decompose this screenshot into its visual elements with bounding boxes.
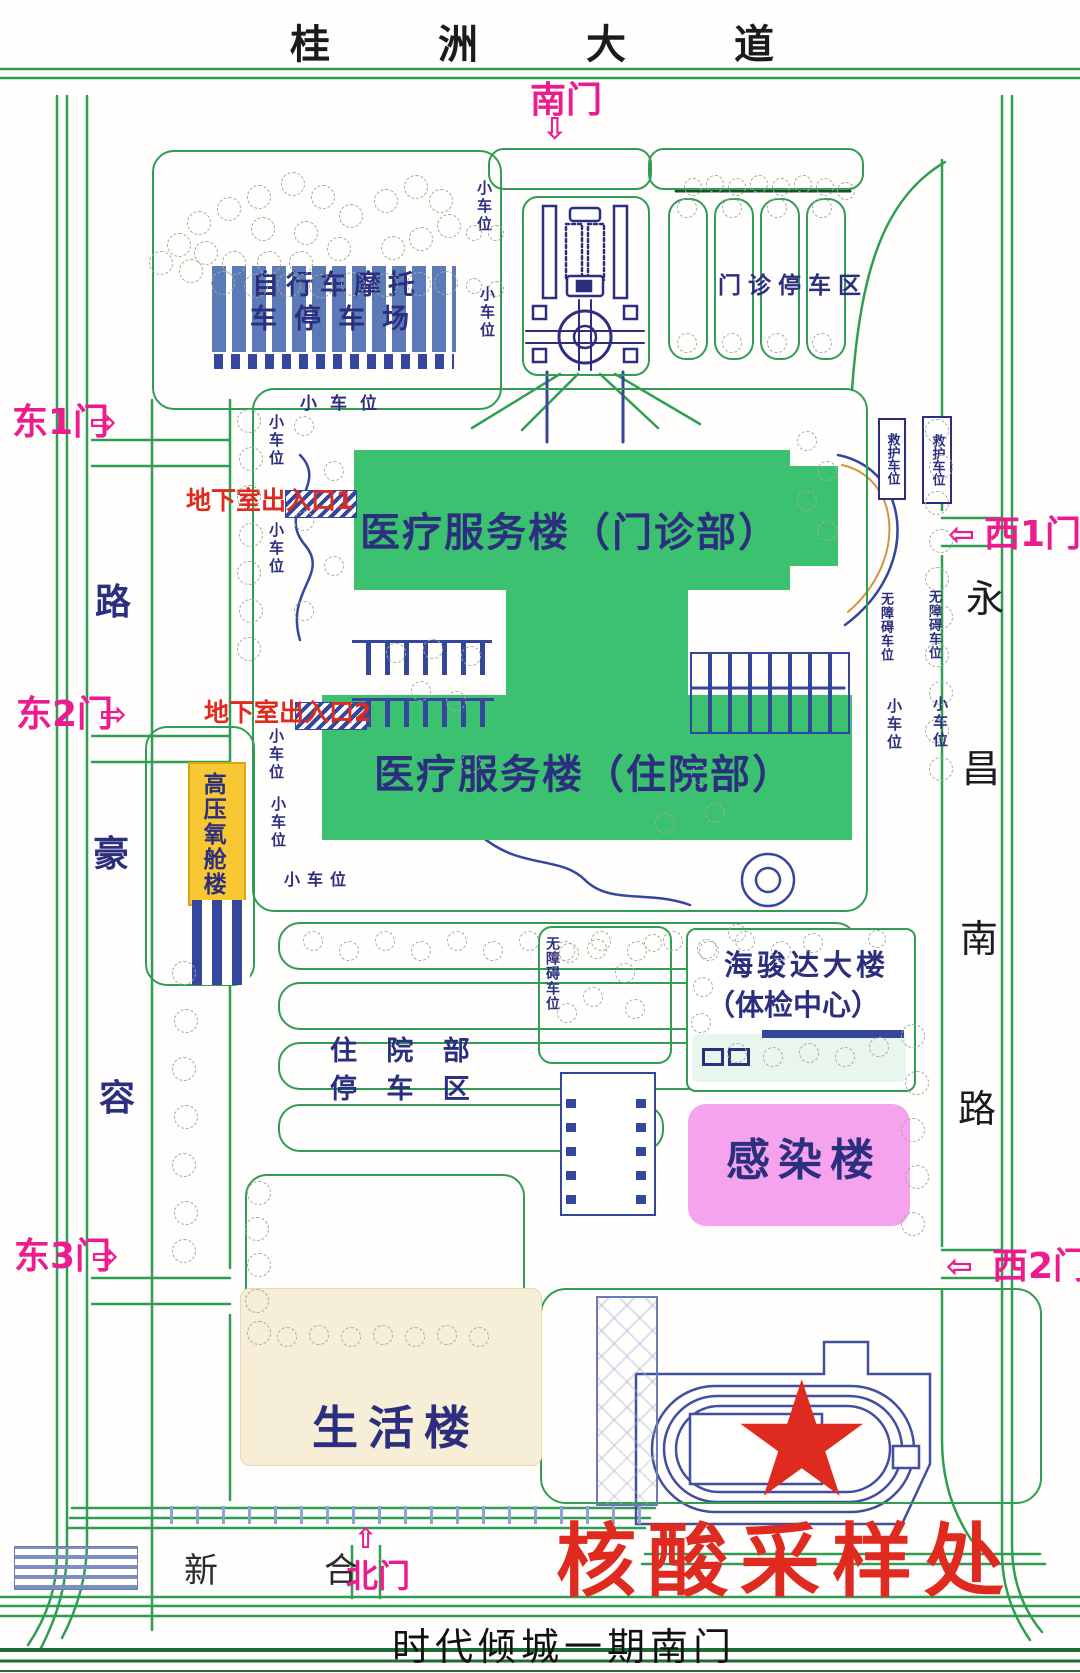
hyperbaric-building-label: 高压氧舱楼: [200, 772, 224, 897]
tree-icon: [149, 251, 173, 275]
small-car-label: 小车位: [884, 698, 905, 752]
tree-icon: [339, 204, 363, 228]
tree-icon: [722, 333, 742, 353]
outpatient-building-label: 医疗服务楼（门诊部）: [360, 512, 780, 554]
tree-icon: [294, 601, 314, 621]
west-road-char: 路: [95, 584, 131, 622]
tree-icon: [447, 931, 467, 951]
haijunda-entry-mark: [702, 1048, 724, 1066]
tree-icon: [684, 178, 702, 196]
tree-icon: [375, 931, 395, 951]
tree-icon: [174, 1201, 198, 1225]
bike-parking-teeth: [214, 354, 454, 369]
south-gate-island: [488, 148, 652, 190]
east-gate2-arrow-icon: ⇨: [100, 698, 127, 732]
tree-icon: [311, 185, 335, 209]
tree-icon: [925, 419, 949, 443]
tree-icon: [407, 272, 431, 296]
tree-icon: [767, 333, 787, 353]
infection-building-label: 感染楼: [726, 1138, 882, 1184]
north-road-char: 新: [184, 1554, 218, 1590]
tree-icon: [237, 561, 261, 585]
tree-icon: [929, 757, 953, 781]
tree-icon: [167, 233, 191, 257]
tree-icon: [374, 273, 398, 297]
inpatient-building-label: 医疗服务楼（住院部）: [374, 754, 794, 796]
ambulance-parking-sign: 救护车位: [878, 418, 906, 500]
tree-icon: [691, 1013, 711, 1033]
life-building-label: 生活楼: [312, 1404, 480, 1452]
tree-icon: [728, 924, 746, 942]
parking-comb: [352, 698, 494, 727]
tree-icon: [172, 1057, 196, 1081]
east-gate2-label: 东2门: [16, 696, 113, 734]
tree-icon: [797, 491, 817, 511]
tree-icon: [247, 1181, 271, 1205]
tree-icon: [901, 1024, 925, 1048]
tree-icon: [324, 556, 344, 576]
south-gate-arrow-icon: ⇩: [542, 114, 567, 146]
tree-icon: [817, 461, 837, 481]
tree-icon: [868, 930, 886, 948]
tree-icon: [239, 447, 263, 471]
tree-icon: [869, 1037, 889, 1057]
haijunda-label-line2: （体检中心）: [706, 990, 880, 1020]
small-car-label: 小车位: [266, 414, 287, 468]
tree-icon: [803, 933, 823, 953]
tree-icon: [294, 416, 314, 436]
tree-icon: [750, 175, 768, 193]
west-road-char: 容: [99, 1080, 135, 1118]
tree-icon: [488, 281, 504, 297]
west-gate2-arrow-icon: ⇦: [946, 1250, 973, 1284]
nucleic-acid-sampling-label: 核酸采样处: [556, 1520, 1016, 1604]
tree-icon: [423, 639, 443, 659]
medical-building-connector: [506, 585, 688, 700]
tree-icon: [763, 1047, 783, 1067]
tree-icon: [677, 333, 697, 353]
tree-icon: [434, 271, 458, 295]
accessible-parking-label: 无障碍车位: [876, 592, 895, 662]
tree-icon: [257, 251, 281, 275]
east-road-char: 南: [960, 920, 998, 960]
ambulance-parking-label: 救护车位: [883, 433, 902, 485]
tree-icon: [706, 175, 724, 193]
haijunda-label-line1: 海骏达大楼: [724, 950, 889, 980]
tree-icon: [172, 1239, 196, 1263]
tree-icon: [835, 1047, 855, 1067]
tree-icon: [663, 931, 683, 951]
tree-icon: [722, 198, 742, 218]
tree-icon: [437, 1325, 457, 1345]
tree-icon: [929, 605, 953, 629]
tree-icon: [381, 236, 405, 260]
tree-icon: [341, 1327, 361, 1347]
tree-icon: [446, 691, 466, 711]
tree-icon: [309, 274, 333, 298]
tree-icon: [466, 225, 482, 241]
avenue-name: 桂洲大道: [290, 24, 882, 66]
parking-grid-east: [690, 652, 850, 734]
west-gate2-label: 西2门: [992, 1248, 1080, 1286]
tree-icon: [327, 237, 351, 261]
tree-icon: [247, 185, 271, 209]
basement-exit-label-1: 地下室出入口1: [186, 488, 353, 514]
service-building-windows: [636, 1084, 646, 1204]
tree-icon: [812, 333, 832, 353]
hospital-campus-map: 桂洲大道 时代倾城一期南门 路 豪 容 永 昌 南 路 新 合 南门 ⇩ 东1门…: [0, 0, 1080, 1673]
hyperbaric-parking-bars: [192, 900, 250, 985]
tree-icon: [294, 221, 318, 245]
west-road-char: 豪: [93, 836, 129, 874]
tree-icon: [929, 529, 953, 553]
small-car-label: 小车位: [266, 522, 287, 576]
tree-icon: [693, 977, 713, 997]
tree-icon: [559, 943, 579, 963]
tree-icon: [466, 278, 482, 294]
tree-icon: [277, 273, 301, 297]
crosswalk-strip: [14, 1546, 138, 1590]
tree-icon: [905, 1165, 929, 1189]
tree-icon: [373, 1325, 393, 1345]
tree-icon: [929, 455, 953, 479]
tree-icon: [172, 961, 196, 985]
tree-icon: [244, 274, 268, 298]
tree-icon: [797, 431, 817, 451]
tree-icon: [816, 178, 834, 196]
north-gate-label: 北门: [346, 1560, 410, 1594]
outpatient-parking-label: 门诊停车区: [718, 274, 868, 298]
tree-icon: [799, 1043, 819, 1063]
tree-icon: [655, 813, 675, 833]
tree-icon: [771, 941, 791, 961]
tree-icon: [237, 637, 261, 661]
small-car-label: 小车位: [268, 796, 289, 850]
tree-icon: [237, 409, 261, 433]
small-car-label: 小车位: [284, 872, 353, 889]
inpatient-parking-label-line2: 停 车 区: [330, 1076, 480, 1104]
tree-icon: [728, 178, 746, 196]
tree-icon: [697, 939, 717, 959]
tree-icon: [324, 461, 344, 481]
ramp-strip: [596, 1296, 658, 1506]
tree-icon: [341, 272, 365, 296]
north-gate-arrow-icon: ⇧: [354, 1524, 377, 1553]
tree-icon: [247, 1321, 271, 1345]
tree-icon: [519, 931, 539, 951]
tree-icon: [677, 198, 697, 218]
tree-icon: [615, 963, 635, 983]
tree-icon: [309, 1325, 329, 1345]
tree-icon: [217, 197, 241, 221]
tree-icon: [705, 803, 725, 823]
east-gate3-arrow-icon: ⇨: [92, 1240, 119, 1274]
tree-icon: [437, 214, 461, 238]
service-building-windows: [566, 1084, 576, 1204]
east-road-char: 昌: [962, 750, 1000, 790]
tree-icon: [179, 259, 203, 283]
tree-icon: [374, 189, 398, 213]
main-gate-zone: [522, 196, 650, 376]
tree-icon: [929, 681, 953, 705]
inpatient-parking-label-line1: 住 院 部: [330, 1038, 480, 1066]
tree-icon: [245, 1289, 269, 1313]
tree-icon: [289, 251, 313, 275]
tree-icon: [245, 1217, 269, 1241]
basement-exit-label-2: 地下室出入口2: [204, 700, 371, 726]
tree-icon: [247, 1253, 271, 1277]
tree-icon: [411, 681, 431, 701]
tree-icon: [469, 1327, 489, 1347]
tree-icon: [187, 211, 211, 235]
small-car-label: 小车位: [266, 728, 287, 782]
tree-icon: [174, 1105, 198, 1129]
tree-icon: [404, 175, 428, 199]
tree-icon: [625, 999, 645, 1019]
tree-icon: [294, 511, 314, 531]
tree-icon: [901, 1118, 925, 1142]
tree-icon: [772, 178, 790, 196]
tree-icon: [727, 1043, 747, 1063]
small-car-label: 小车位: [300, 396, 390, 414]
tree-icon: [411, 941, 431, 961]
tree-icon: [405, 1327, 425, 1347]
tree-icon: [925, 567, 949, 591]
tree-icon: [251, 217, 275, 241]
tree-icon: [239, 599, 263, 623]
east-road-char: 永: [966, 580, 1004, 620]
tree-icon: [277, 1327, 297, 1347]
medical-building-right-ext: [786, 466, 838, 566]
tree-icon: [429, 189, 453, 213]
tree-icon: [303, 931, 323, 951]
tree-icon: [172, 1153, 196, 1177]
tree-icon: [812, 198, 832, 218]
tree-icon: [461, 646, 481, 666]
tree-icon: [767, 198, 787, 218]
tree-icon: [925, 643, 949, 667]
tree-icon: [557, 1003, 577, 1023]
tree-icon: [386, 643, 406, 663]
tree-icon: [239, 523, 263, 547]
tree-icon: [905, 1071, 929, 1095]
tree-icon: [488, 225, 504, 241]
tree-icon: [237, 485, 261, 509]
tree-icon: [837, 182, 855, 200]
east-gate1-arrow-icon: ⇨: [90, 406, 117, 440]
tree-icon: [794, 175, 812, 193]
tree-icon: [211, 271, 235, 295]
tree-icon: [587, 939, 607, 959]
tree-icon: [409, 227, 433, 251]
west-gate1-label: 西1门: [984, 516, 1080, 554]
bike-parking-label-line2: 车停车场: [250, 306, 426, 334]
tree-icon: [691, 765, 711, 785]
star-icon: ★: [730, 1360, 873, 1520]
tree-icon: [339, 941, 359, 961]
tree-icon: [817, 521, 837, 541]
tree-icon: [483, 941, 503, 961]
tree-icon: [644, 934, 662, 952]
tree-icon: [901, 1212, 925, 1236]
bottom-gate-name: 时代倾城一期南门: [392, 1628, 736, 1668]
tree-icon: [174, 1009, 198, 1033]
tree-icon: [461, 753, 481, 773]
tree-icon: [925, 719, 949, 743]
tree-icon: [281, 172, 305, 196]
tree-icon: [925, 491, 949, 515]
east-road-char: 路: [958, 1090, 996, 1130]
west-gate1-arrow-icon: ⇦: [948, 518, 975, 552]
tree-icon: [583, 987, 603, 1007]
